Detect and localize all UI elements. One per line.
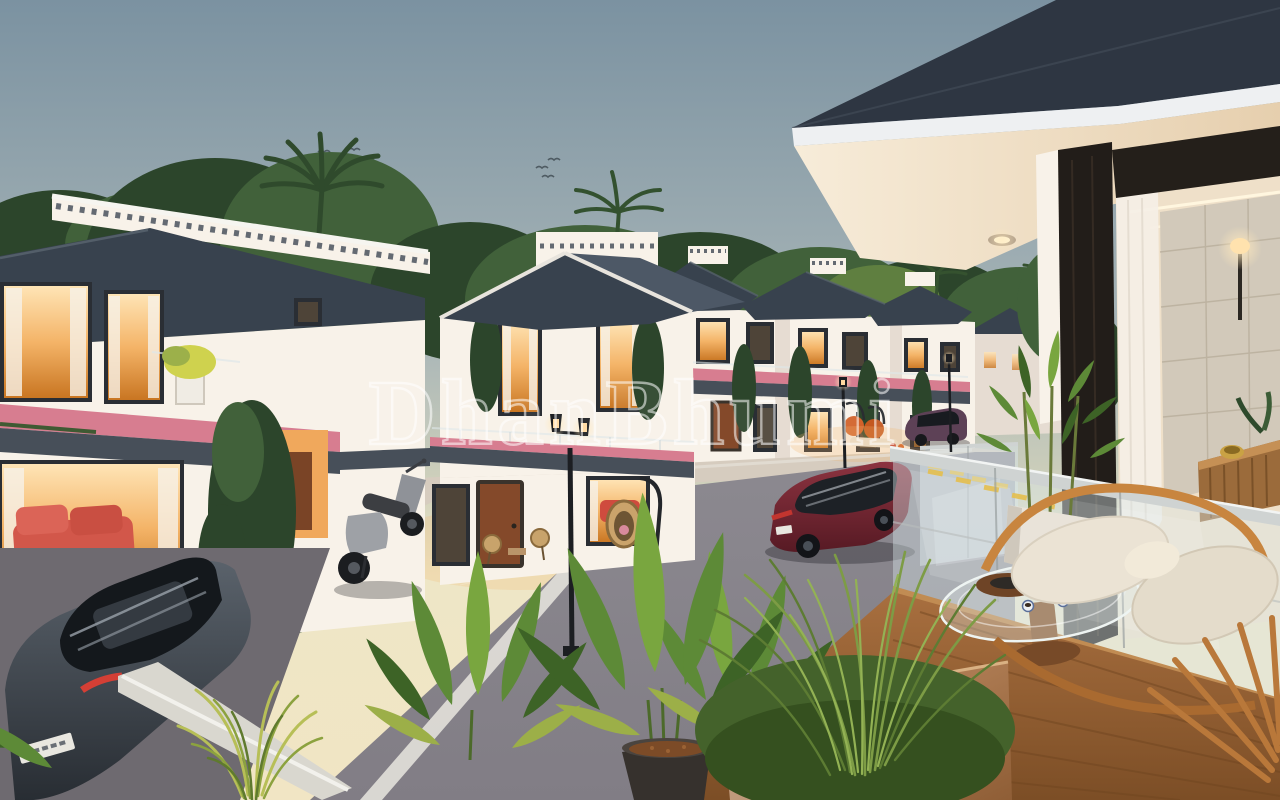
scene-svg: DhanBhumi: [0, 0, 1280, 800]
watermark-text: DhanBhumi: [369, 362, 900, 465]
architectural-render: DhanBhumi: [0, 0, 1280, 800]
